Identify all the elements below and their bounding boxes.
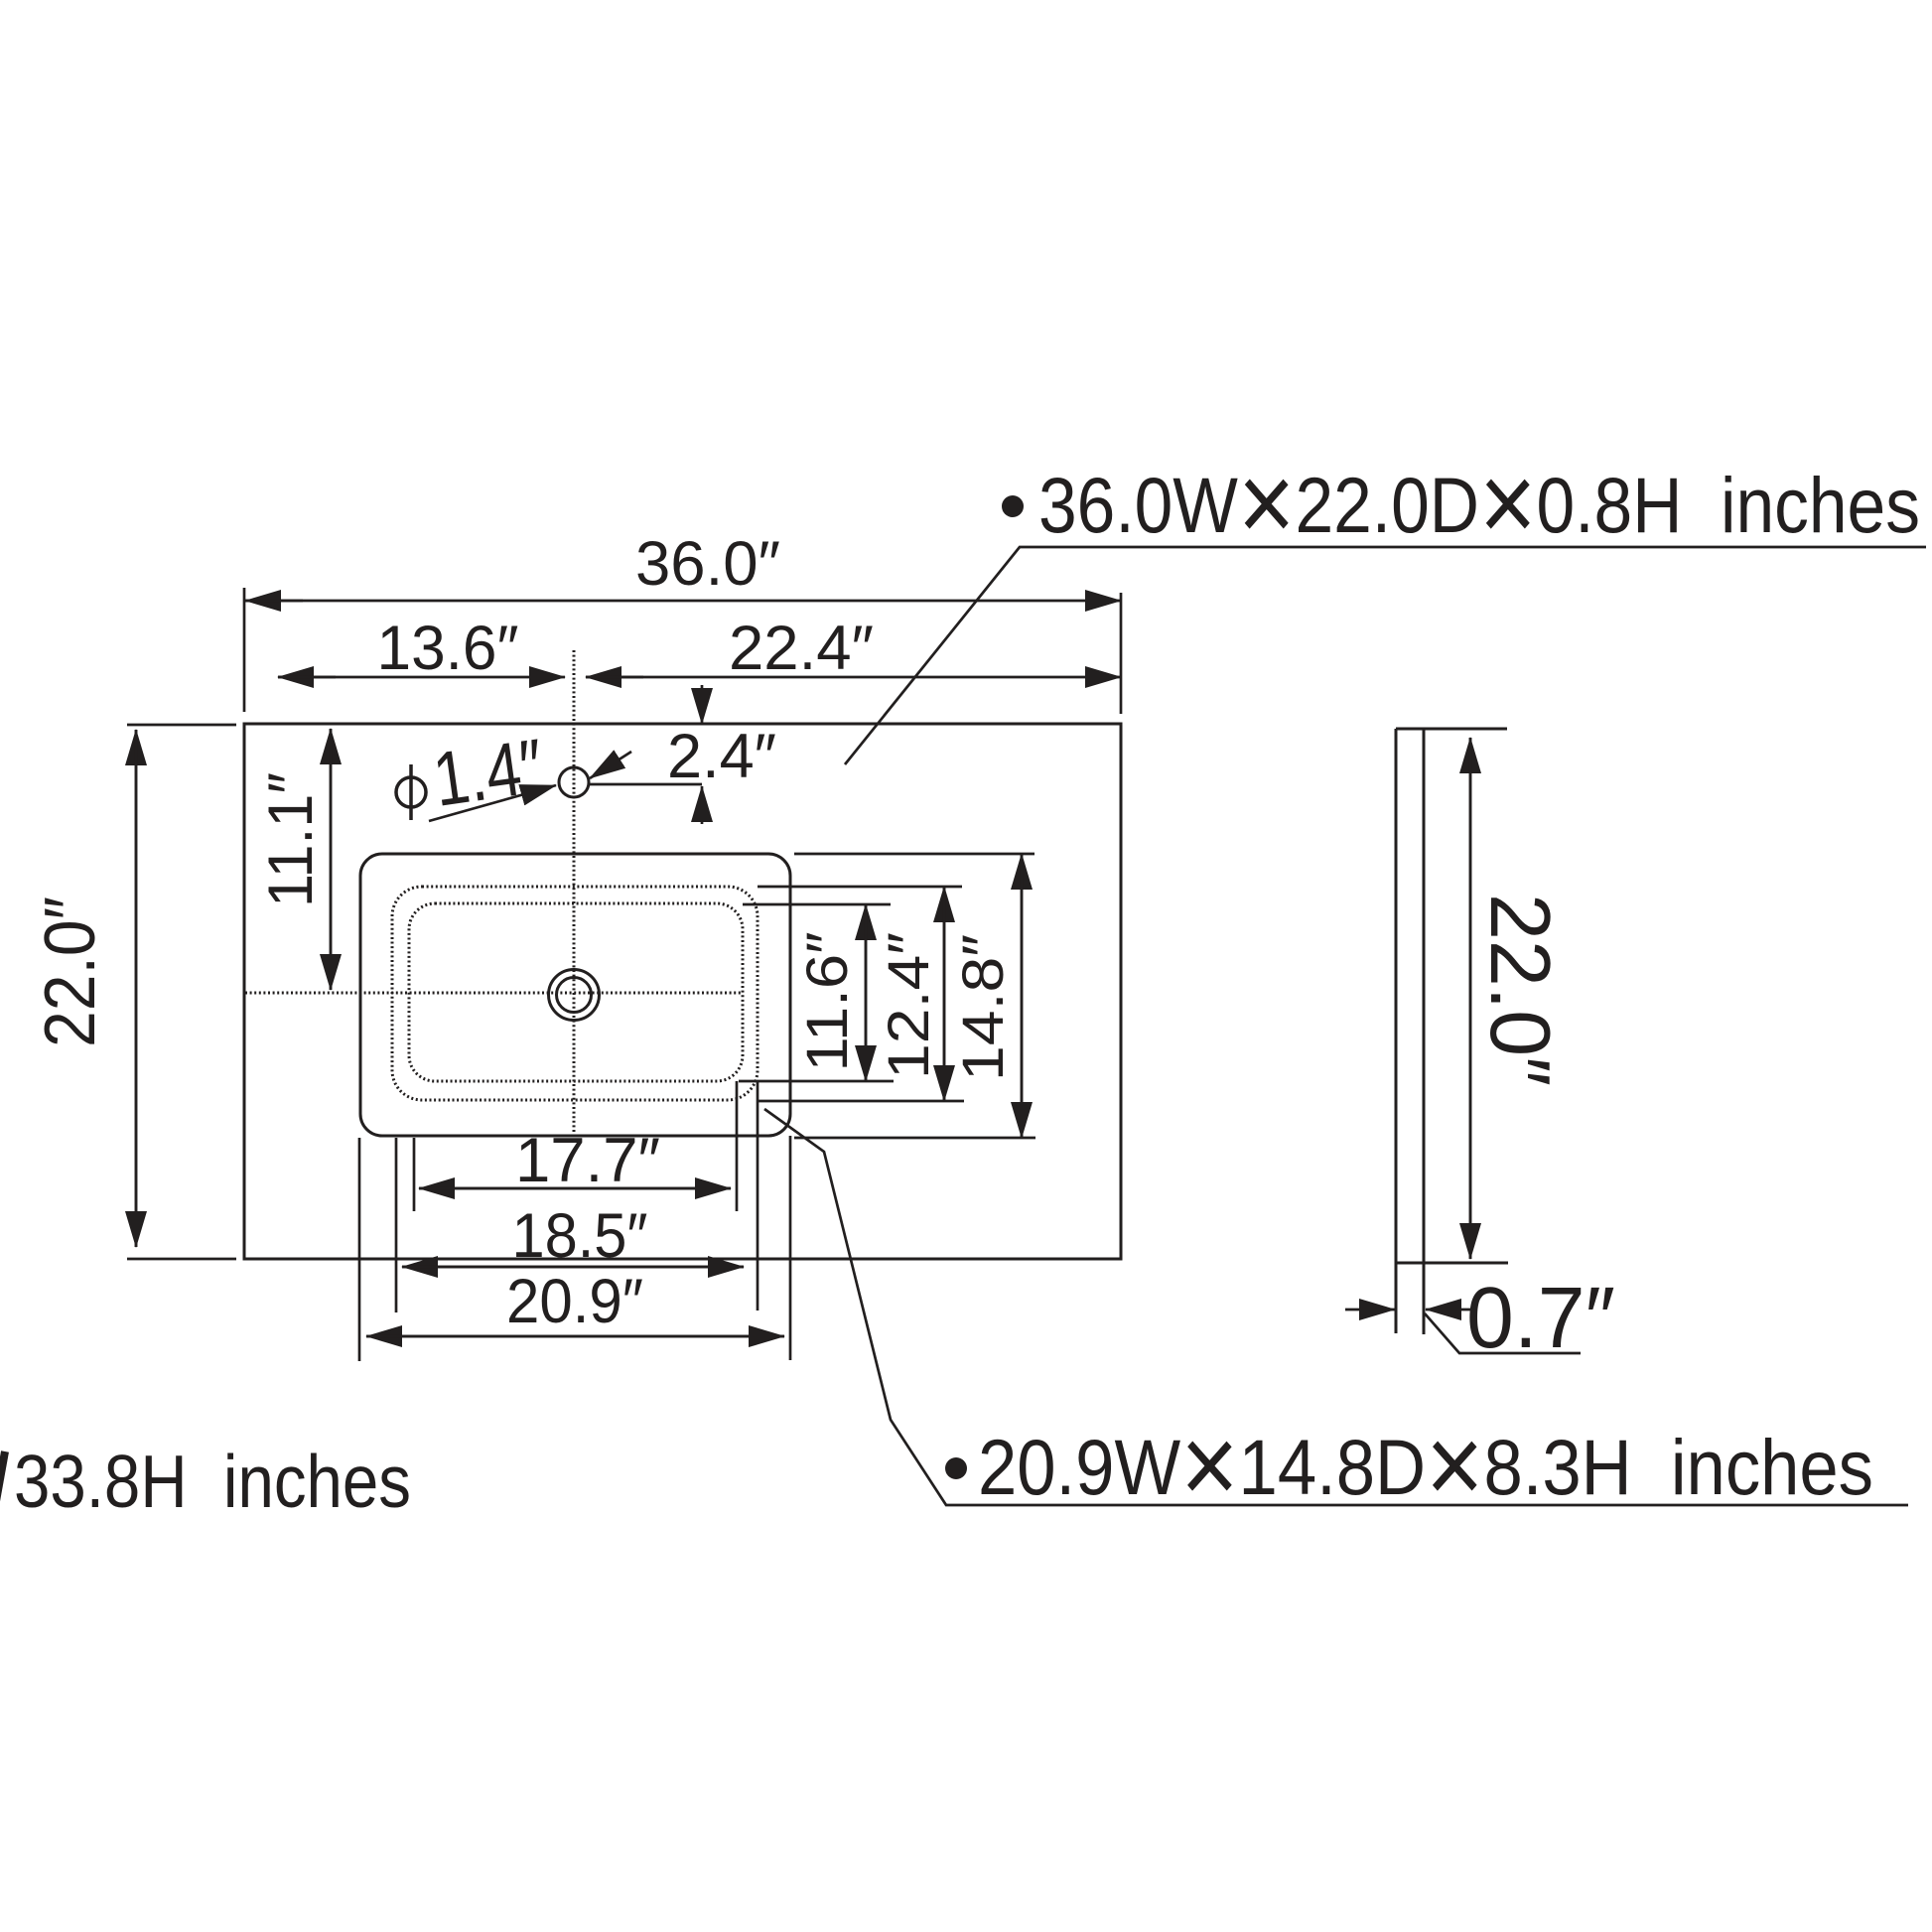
svg-text:36.0″: 36.0″ (635, 529, 780, 599)
svg-text:13.6″: 13.6″ (377, 614, 519, 683)
svg-text:11.6″: 11.6″ (795, 932, 860, 1072)
svg-text:12.4″: 12.4″ (877, 932, 941, 1079)
svg-text:20.9W×14.8D×8.3H inches: 20.9W×14.8D×8.3H inches (978, 1403, 1873, 1527)
svg-text:17.7″: 17.7″ (515, 1126, 660, 1195)
svg-text:14.8″: 14.8″ (951, 934, 1016, 1081)
svg-text:1.4″: 1.4″ (428, 723, 548, 822)
svg-text:22.0″: 22.0″ (1472, 894, 1567, 1086)
svg-text:11.1″: 11.1″ (256, 772, 326, 907)
svg-text:22.0″: 22.0″ (31, 897, 110, 1047)
svg-text:22.4″: 22.4″ (729, 614, 874, 683)
svg-text:2.4″: 2.4″ (667, 722, 776, 791)
svg-text:20.9″: 20.9″ (506, 1267, 643, 1336)
svg-text:33.8H inches: 33.8H inches (14, 1440, 411, 1523)
svg-text:18.5″: 18.5″ (512, 1201, 648, 1271)
svg-text:0.7″: 0.7″ (1466, 1270, 1615, 1366)
svg-text:36.0W×22.0D×0.8H inches: 36.0W×22.0D×0.8H inches (1038, 441, 1920, 565)
